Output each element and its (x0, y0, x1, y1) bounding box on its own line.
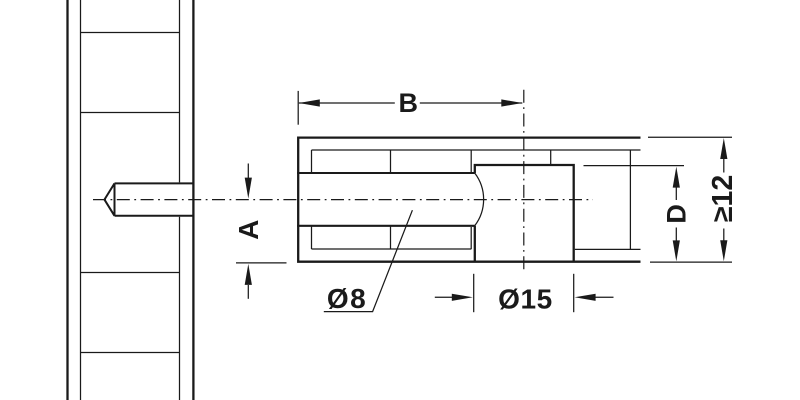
svg-text:D: D (662, 204, 692, 224)
svg-text:A: A (233, 220, 264, 240)
svg-text:Ø8: Ø8 (327, 283, 367, 314)
svg-text:Ø15: Ø15 (498, 284, 553, 315)
svg-text:B: B (399, 88, 419, 118)
svg-text:≥12: ≥12 (707, 175, 739, 222)
